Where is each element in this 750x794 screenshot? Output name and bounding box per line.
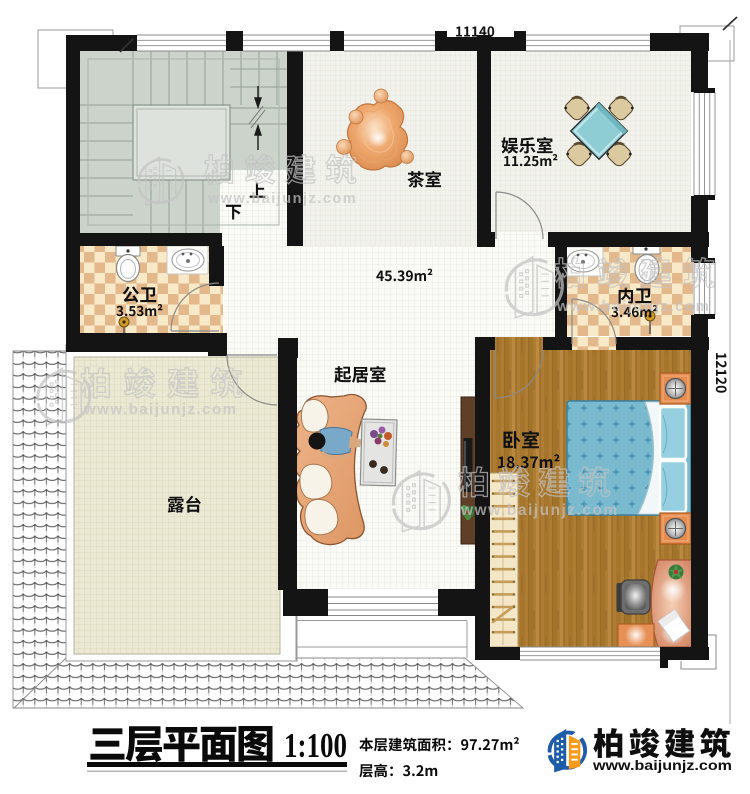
svg-text:www.baijunjz.com: www.baijunjz.com <box>460 502 619 519</box>
svg-text:www.baijunjz.com: www.baijunjz.com <box>592 757 732 773</box>
svg-text:www.baijunjz.com: www.baijunjz.com <box>83 401 237 418</box>
svg-text:www.baijunjz.com: www.baijunjz.com <box>556 298 710 315</box>
svg-text:1:100: 1:100 <box>284 726 347 765</box>
svg-text:www.baijunjz.com: www.baijunjz.com <box>207 191 357 207</box>
